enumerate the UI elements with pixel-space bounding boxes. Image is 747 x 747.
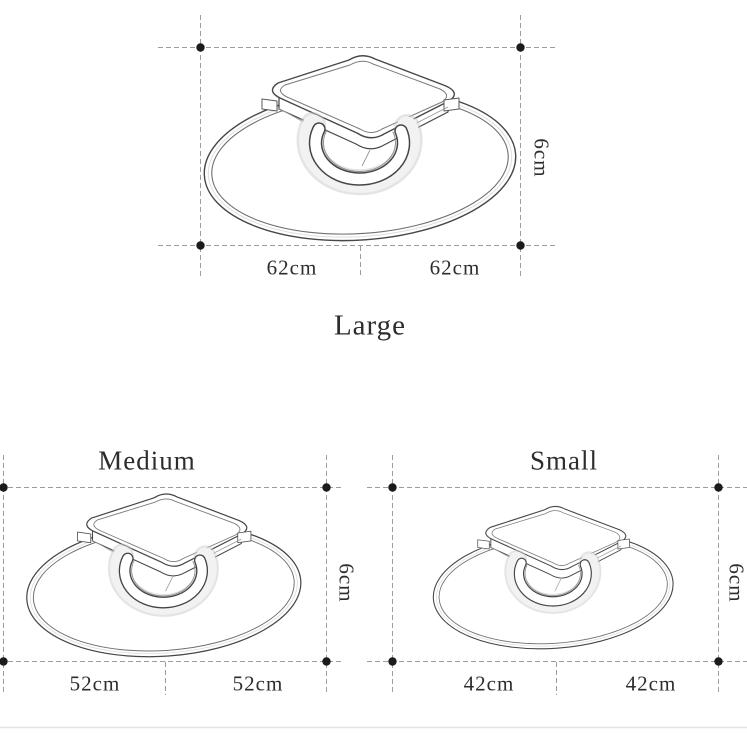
small-width-left-label: 42cm: [464, 672, 515, 697]
corner-marker: [516, 241, 524, 249]
medium-width-left-label: 52cm: [70, 672, 121, 697]
corner-marker: [0, 483, 8, 491]
medium-height-label: 6cm: [334, 563, 359, 602]
medium-size-name: Medium: [98, 446, 196, 477]
large-height-label: 6cm: [529, 138, 554, 177]
large-width-left-label: 62cm: [267, 256, 318, 281]
lamp-drawing-small: [429, 506, 677, 656]
corner-marker: [196, 241, 204, 249]
corner-marker: [714, 483, 722, 491]
corner-marker: [388, 657, 396, 665]
corner-marker: [322, 657, 330, 665]
corner-marker: [196, 43, 204, 51]
medium-width-right-label: 52cm: [233, 672, 284, 697]
small-width-right-label: 42cm: [626, 672, 677, 697]
corner-marker: [516, 43, 524, 51]
corner-marker: [388, 483, 396, 491]
small-size-name: Small: [530, 446, 598, 477]
product-dimension-diagram: 62cm 62cm 6cm Large Medium 52cm 52cm 6cm…: [0, 0, 747, 747]
diagram-linework: [0, 0, 747, 747]
lamp-drawing-medium: [22, 494, 305, 666]
small-height-label: 6cm: [724, 563, 747, 602]
corner-marker: [322, 483, 330, 491]
large-size-name: Large: [334, 310, 406, 343]
dimension-frame-large: [158, 15, 558, 277]
corner-marker: [0, 657, 8, 665]
large-width-right-label: 62cm: [430, 256, 481, 281]
lamp-drawing-large: [199, 56, 521, 251]
corner-marker: [714, 657, 722, 665]
